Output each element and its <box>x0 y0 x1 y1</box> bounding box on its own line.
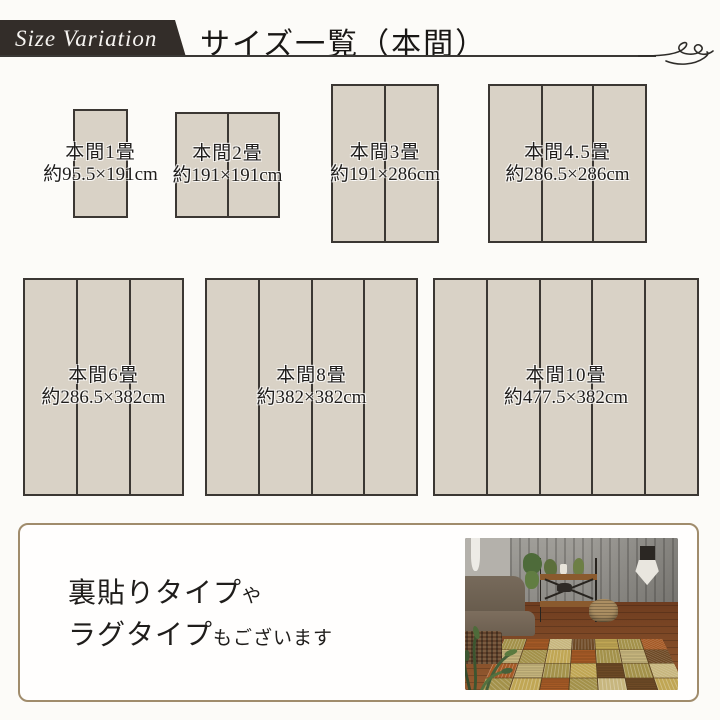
shelf-kettle <box>557 583 572 592</box>
flourish-ornament-icon <box>638 40 716 74</box>
size-name: 本間2畳 <box>173 143 283 165</box>
size-label: 本間4.5畳 約286.5×286cm <box>505 142 629 186</box>
note-line-2: ラグタイプもございます <box>68 617 333 659</box>
wall-hanging-frame <box>640 546 655 561</box>
photo-foreground-plant <box>465 616 537 690</box>
shelf-plant <box>573 558 585 576</box>
photo-wall-hanging <box>635 546 658 586</box>
size-dims: 約95.5×191cm <box>43 164 158 186</box>
ribbon-label: Size Variation <box>0 26 157 52</box>
size-mat-honma-2jo: 本間2畳 約191×191cm <box>175 112 280 218</box>
size-name: 本間3畳 <box>330 142 440 164</box>
size-dims: 約286.5×286cm <box>505 164 629 186</box>
shelf-pot <box>560 564 567 575</box>
size-mat-honma-8jo: 本間8畳 約382×382cm <box>205 278 418 496</box>
size-mat-honma-3jo: 本間3畳 約191×286cm <box>331 84 439 243</box>
size-label: 本間10畳 約477.5×382cm <box>504 365 628 409</box>
size-name: 本間4.5畳 <box>505 142 629 164</box>
size-label: 本間6畳 約286.5×382cm <box>41 365 165 409</box>
size-name: 本間6畳 <box>41 365 165 387</box>
size-dims: 約191×286cm <box>330 164 440 186</box>
size-dims: 約286.5×382cm <box>41 387 165 409</box>
size-label: 本間8畳 約382×382cm <box>257 365 367 409</box>
size-name: 本間1畳 <box>43 142 158 164</box>
size-mat-honma-1jo: 本間1畳 約95.5×191cm <box>73 109 128 218</box>
photo-basket <box>589 599 619 622</box>
size-dims: 約191×191cm <box>173 165 283 187</box>
note-line2-main: ラグタイプ <box>68 620 213 651</box>
size-name: 本間8畳 <box>257 365 367 387</box>
size-name: 本間10畳 <box>504 365 628 387</box>
size-mat-honma-6jo: 本間6畳 約286.5×382cm <box>23 278 184 496</box>
size-label: 本間1畳 約95.5×191cm <box>43 142 158 186</box>
header-rule <box>0 55 656 57</box>
size-label: 本間2畳 約191×191cm <box>173 143 283 187</box>
mat-divider <box>486 280 488 494</box>
note-line1-main: 裏貼りタイプ <box>68 578 242 609</box>
note-text: 裏貼りタイプや ラグタイプもございます <box>68 575 333 659</box>
room-photo <box>465 538 678 690</box>
size-label: 本間3畳 約191×286cm <box>330 142 440 186</box>
photo-curtain <box>471 538 480 571</box>
size-mat-honma-10jo: 本間10畳 約477.5×382cm <box>433 278 699 496</box>
note-line-1: 裏貼りタイプや <box>68 575 333 617</box>
note-line2-suffix: もございます <box>213 628 333 649</box>
mat-divider <box>644 280 646 494</box>
size-dims: 約477.5×382cm <box>504 387 628 409</box>
size-mat-honma-4-5jo: 本間4.5畳 約286.5×286cm <box>488 84 647 243</box>
wall-hanging-cloth <box>635 560 658 585</box>
size-variation-ribbon: Size Variation <box>0 20 186 57</box>
size-dims: 約382×382cm <box>257 387 367 409</box>
shelf-plant <box>544 559 557 576</box>
note-line1-suffix: や <box>242 586 262 607</box>
